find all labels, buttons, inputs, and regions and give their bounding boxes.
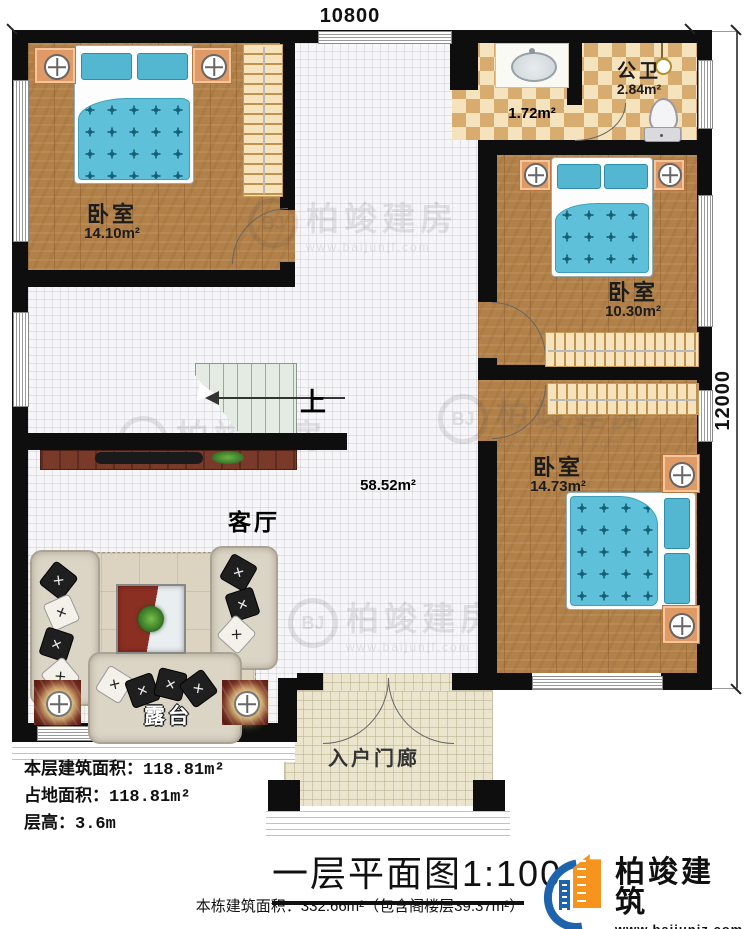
porch-pillar	[268, 780, 300, 811]
wall	[12, 270, 295, 287]
coffee-table	[116, 584, 186, 654]
dimension-right: 12000	[712, 370, 735, 431]
floor-info-block: 本层建筑面积：118.81m² 占地面积：118.81m² 层高：3.6m	[24, 756, 225, 837]
brand-logo-icon	[543, 850, 609, 922]
accent-rug	[34, 680, 81, 725]
room-label-living: 客厅	[228, 503, 280, 537]
wall	[697, 30, 712, 690]
wall	[478, 140, 712, 155]
window	[698, 195, 713, 327]
plan-title-text: 一层平面图	[272, 853, 462, 894]
room-label-terrace: 露台	[144, 700, 192, 730]
room-label-wash: 1.72m²	[498, 105, 566, 122]
wardrobe	[545, 332, 699, 367]
plant-icon	[138, 606, 164, 632]
window	[532, 676, 663, 690]
wall	[278, 678, 297, 742]
total-area-note: 本栋建筑面积：332.66m²（包含阁楼层39.37m²）	[190, 895, 530, 916]
window	[698, 390, 713, 442]
wall	[478, 155, 497, 302]
window	[318, 31, 452, 44]
sink-icon	[511, 52, 557, 82]
brand-logo: 柏竣建筑 www.baijunjz.com	[543, 850, 743, 924]
wall	[478, 365, 712, 380]
wall	[478, 673, 532, 690]
accent-rug	[222, 680, 268, 725]
toilet-icon	[644, 98, 679, 142]
stairs-up-label: 上	[300, 382, 329, 419]
window	[698, 60, 713, 129]
bed	[551, 157, 653, 277]
nightstand	[653, 159, 685, 191]
wardrobe	[243, 44, 283, 197]
porch-pillar	[473, 780, 505, 811]
bed	[74, 45, 194, 184]
wardrobe	[547, 383, 699, 415]
room-label-bath: 公卫 2.84m²	[605, 62, 673, 97]
nightstand	[34, 47, 76, 84]
window	[13, 80, 29, 242]
dimension-extension	[712, 31, 738, 32]
room-label-porch: 入户门廊	[328, 742, 420, 771]
room-label-bedroom2: 卧室 10.30m²	[595, 281, 671, 320]
tv-screen	[95, 452, 203, 464]
wall	[478, 441, 497, 673]
sink-counter	[495, 43, 569, 88]
dimension-line-right	[736, 31, 738, 690]
floor-area-line: 本层建筑面积：118.81m²	[24, 756, 225, 783]
living-area-value: 58.52m²	[348, 477, 428, 494]
brand-name: 柏竣建筑	[615, 858, 743, 918]
nightstand	[662, 454, 700, 493]
wall	[567, 43, 582, 105]
plant-icon	[212, 451, 244, 464]
room-label-bedroom3: 卧室 14.73m²	[520, 456, 596, 495]
room-label-bedroom1: 卧室 14.10m²	[60, 203, 164, 242]
wall	[661, 673, 712, 690]
floor-plan: BJ 柏竣建房 www.baijunjf.com BJ 柏竣建房 www.bai…	[0, 0, 750, 929]
dimension-top: 10800	[300, 5, 400, 28]
wall	[450, 43, 478, 90]
window	[13, 312, 29, 407]
story-height-line: 层高：3.6m	[24, 810, 225, 837]
nightstand	[192, 47, 232, 84]
wall	[297, 673, 323, 690]
bed	[566, 492, 696, 610]
nightstand	[662, 605, 700, 644]
wall	[28, 433, 347, 450]
land-area-line: 占地面积：118.81m²	[24, 783, 225, 810]
faucet-icon	[529, 48, 535, 54]
brand-website: www.baijunjz.com	[615, 922, 743, 929]
nightstand	[519, 159, 551, 191]
stairs-arrow-icon	[205, 391, 219, 405]
